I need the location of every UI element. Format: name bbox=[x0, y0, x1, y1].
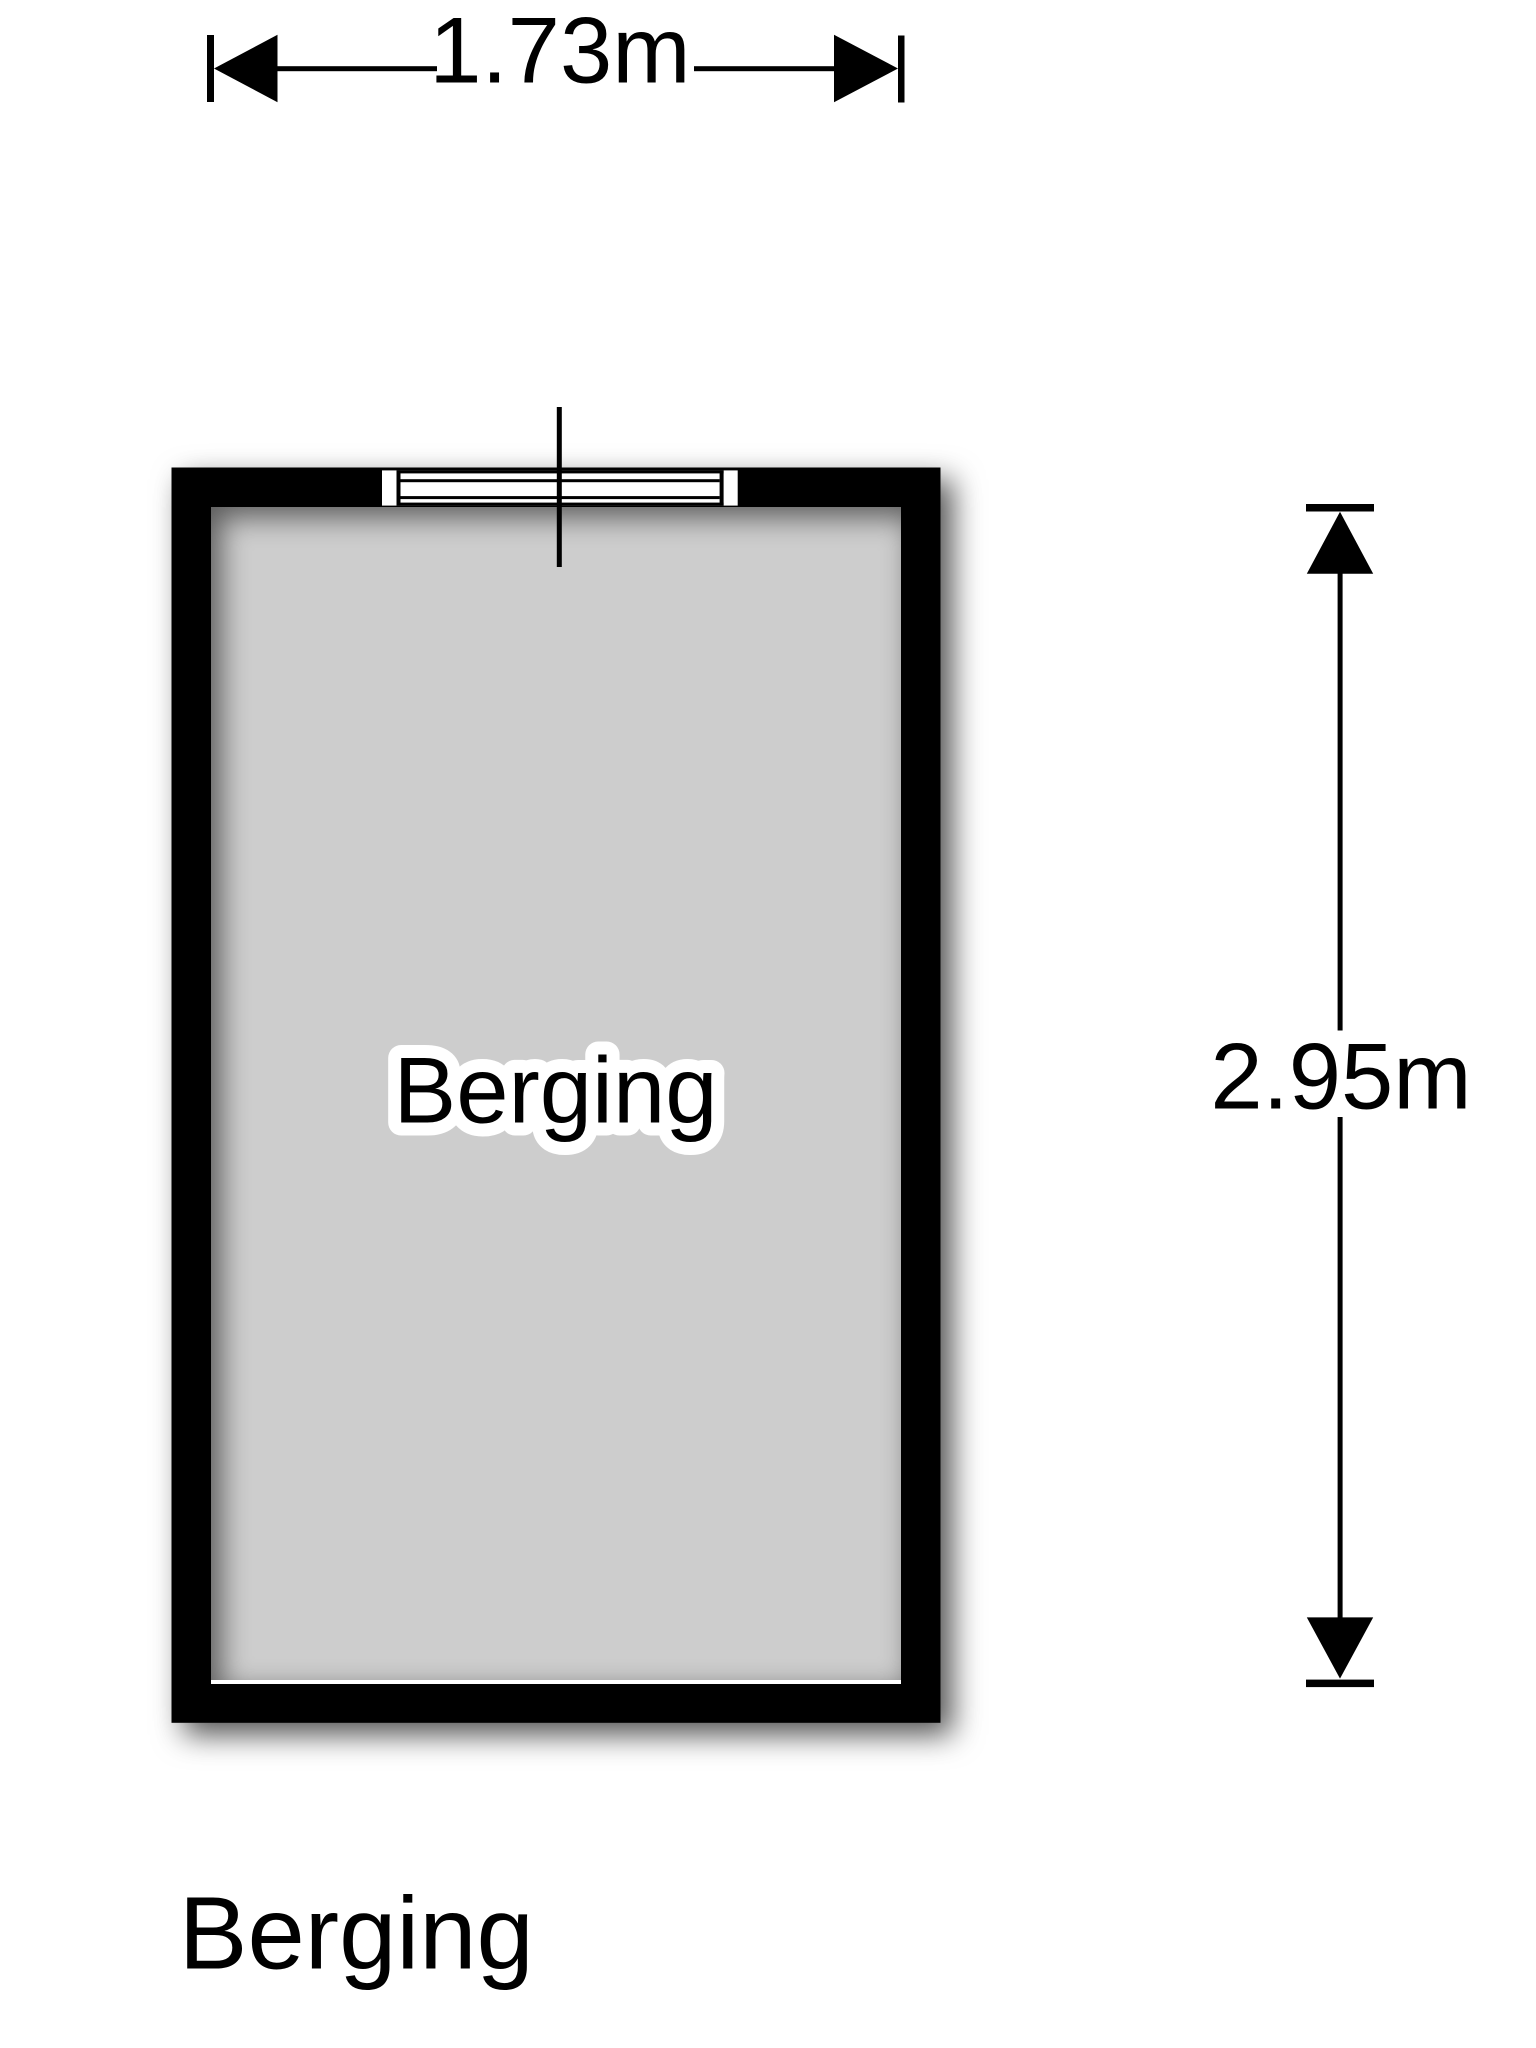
svg-text:Berging: Berging bbox=[179, 1876, 534, 1991]
svg-text:2.95m: 2.95m bbox=[1210, 1024, 1471, 1129]
svg-text:1.73m: 1.73m bbox=[429, 0, 690, 103]
svg-text:Berging: Berging bbox=[394, 1038, 718, 1143]
